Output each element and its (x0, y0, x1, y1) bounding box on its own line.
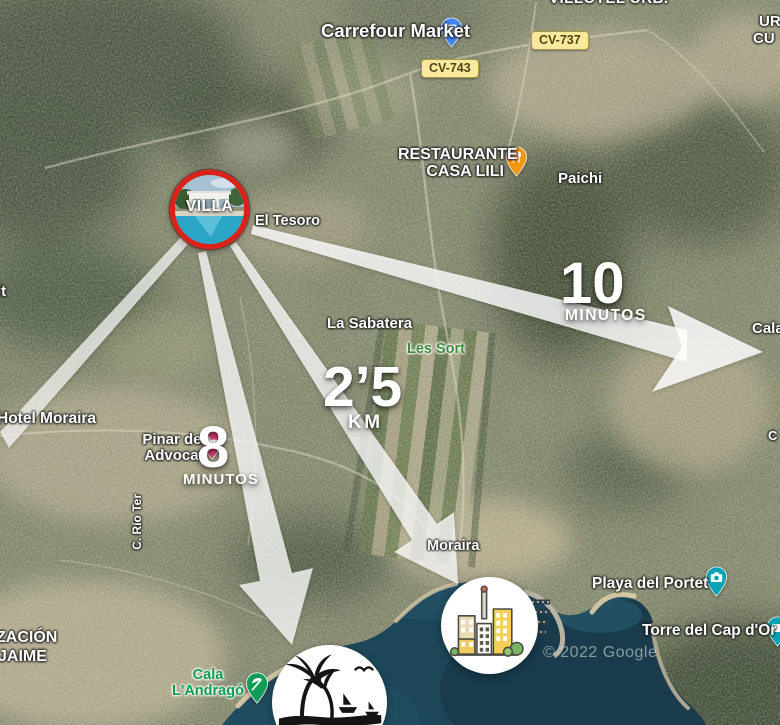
poi-label-carrefour: Carrefour Market (321, 21, 470, 41)
callout-8-unit: MINUTOS (183, 472, 259, 487)
villa-marker: VILLA (170, 170, 249, 249)
place-label-les-sort: Les Sort (407, 342, 465, 358)
villa-label: VILLA (175, 198, 244, 216)
callout-8-value: 8 (197, 419, 229, 477)
place-label-urb-cut-2: CU (753, 31, 775, 47)
poi-label-restaurante: RESTAURANTE CASA LILI (398, 146, 504, 181)
beach-parasol-pin (245, 671, 269, 705)
place-label-villotel: VILLOTEL URB. (549, 0, 669, 7)
place-label-paichi: Paichi (558, 171, 602, 187)
callout-10-value: 10 (560, 255, 625, 313)
map-attribution: © 2022 Google (543, 644, 657, 662)
place-label-cala-cut: Cala (752, 321, 780, 337)
place-label-jaime-cut: JAIME (0, 648, 47, 665)
poi-label-cala-andrago-line1: Cala (170, 668, 246, 684)
callout-10-unit: MINUTOS (565, 308, 647, 324)
place-label-urb-cut-1: UR (759, 14, 780, 30)
poi-label-torre-cap-dor: Torre del Cap d'Or (642, 623, 776, 640)
place-label-urbanizacion-cut: ZACIÓN (0, 629, 57, 646)
callout-25-value: 2’5 (323, 359, 402, 416)
poi-label-cala-andrago: Cala L'Andragó (170, 668, 246, 699)
road-badge-cv743: CV-743 (421, 59, 479, 78)
poi-label-restaurante-line2: CASA LILI (398, 163, 504, 180)
poi-label-restaurante-line1: RESTAURANTE (398, 146, 504, 163)
photo-camera-pin (705, 565, 728, 598)
place-label-moraira: Moraira (427, 539, 479, 555)
place-label-left-cut: it (0, 284, 6, 300)
poi-label-playa-portet: Playa del Portet (592, 576, 708, 593)
place-label-el-tesoro: El Tesoro (255, 214, 320, 230)
road-badge-cv737: CV-737 (531, 31, 589, 50)
callout-25-unit: KM (348, 413, 383, 432)
poi-label-hotel-moraira: Hotel Moraira (0, 411, 96, 428)
city-buildings-illustration (441, 577, 538, 674)
place-label-la-sabatera: La Sabatera (327, 316, 412, 332)
street-label-rio-ter: C. Río Ter (131, 494, 144, 550)
poi-label-cala-andrago-line2: L'Andragó (170, 684, 246, 700)
promo-map: VILLA CV-743 CV-737 Carrefour Market VIL… (0, 0, 780, 725)
place-label-right-cut: C (768, 429, 777, 443)
city-buildings-icon (441, 577, 538, 674)
